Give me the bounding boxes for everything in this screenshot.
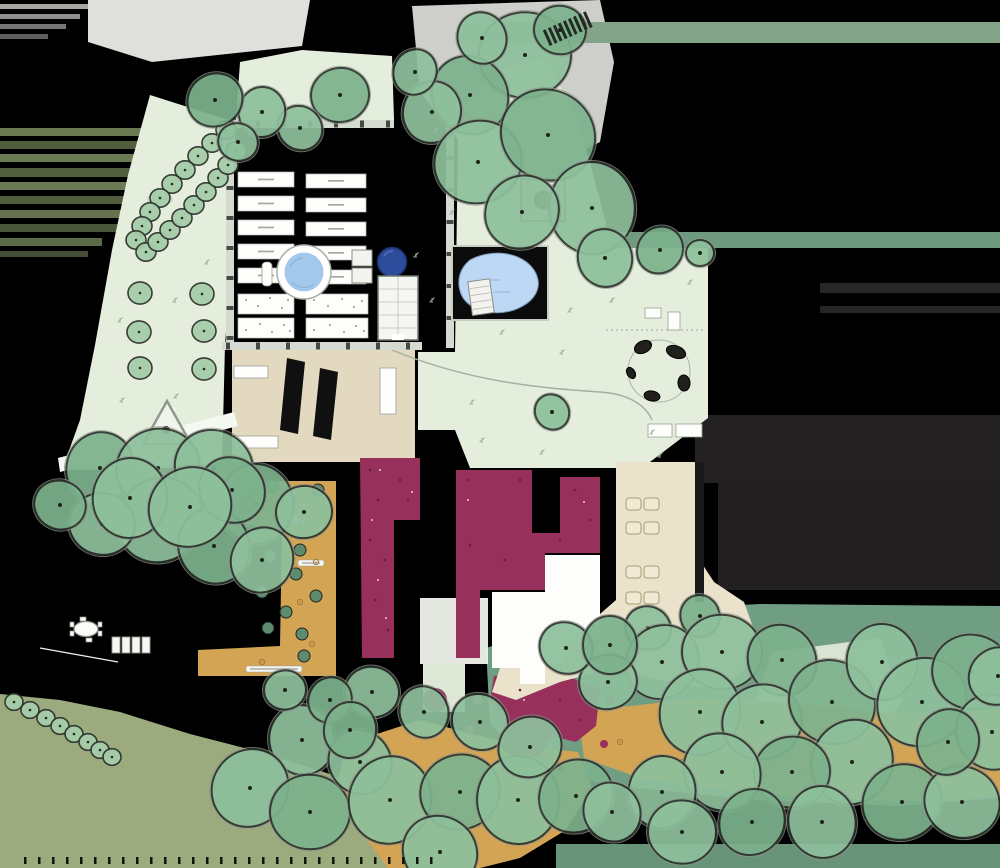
bed-label-mark [258,203,274,205]
tree-center [478,720,482,724]
paving-speckle [377,499,380,502]
edge-tick [24,857,27,864]
raised-bed-planted [238,294,294,314]
terrace-step [380,368,396,414]
tree-center [610,810,614,814]
paving-fleck [523,699,525,701]
edge-tick [80,857,83,864]
hedge-shrub-center [141,225,144,228]
hedge-shrub-center [145,251,148,254]
tree-center [720,770,724,774]
tree-center [328,698,332,702]
bed-speckle [259,323,261,325]
shadow-band [820,283,1000,293]
tree-center [422,710,426,714]
edge-stripe [0,251,88,257]
tree-center [830,700,834,704]
greenhouse-door [392,334,404,340]
paper-stripe [0,14,80,19]
paving-fleck [371,519,373,521]
tree-center [468,93,472,97]
bed-speckle [257,305,259,307]
meadow-shrub-center [13,701,16,704]
garden-furniture [668,312,680,330]
shadow-patch [695,415,1000,483]
edge-tick [262,857,265,864]
bed-label-mark [328,252,344,254]
hedge-shrub-center [159,197,162,200]
tree-center [388,798,392,802]
hedge-shrub-center [135,239,138,242]
edge-tick [346,857,349,864]
lounger [644,566,659,578]
meadow-shrub-center [87,741,90,744]
pool-bench [262,262,272,286]
tree-center [660,790,664,794]
bed-speckle [361,300,363,302]
paving-fleck [583,501,585,503]
paving-fleck [377,579,379,581]
tree-center [260,558,264,562]
picnic-table [74,622,98,637]
paper-stripe [0,24,66,29]
edge-tick [66,857,69,864]
gravel-shrub [280,606,292,618]
bed-label-mark [328,228,344,230]
tree-center [590,206,594,210]
tree-center [606,680,610,684]
pond-jetty [468,279,495,316]
tree-center [698,251,702,255]
paving-speckle [387,629,390,632]
picnic-chair [98,631,102,636]
edge-tick [416,857,419,864]
edge-tick [360,857,363,864]
bed-speckle [313,329,315,331]
edge-tick [150,857,153,864]
edge-tick [276,857,279,864]
tree-center [358,760,362,764]
paving-speckle [589,519,592,522]
picnic-chair [98,622,102,627]
picnic-chair [86,638,92,642]
tree-center [698,710,702,714]
tree-center [188,505,192,509]
tree-center [760,720,764,724]
edge-tick [304,857,307,864]
tree-center [298,126,302,130]
paving-fleck [467,499,469,501]
paper-stripe [0,34,48,39]
paving-fleck [385,617,387,619]
paving-speckle [559,699,562,702]
compost-bin [142,637,150,653]
gravel-squiggle [261,661,263,663]
edge-tick [38,857,41,864]
picnic-chair [80,617,86,621]
hedge-shrub-center [227,164,230,167]
paving-fleck [379,469,381,471]
lounger [626,566,641,578]
lounger [644,592,659,604]
hedge-shrub-center [181,217,184,220]
tree-center [236,140,240,144]
tree-center [780,658,784,662]
edge-tick [318,857,321,864]
terrace-bench [234,366,268,378]
meadow-shrub-center [73,733,76,736]
tree-center [212,544,216,548]
lawn-shrub-center [138,331,141,334]
tree-center [946,740,950,744]
edge-tick [94,857,97,864]
bed-speckle [271,331,273,333]
tree-center [608,643,612,647]
lounger [626,592,641,604]
garden-shed [352,268,372,283]
tree-center [564,646,568,650]
raised-bed-planted [306,318,368,338]
tree-center [658,248,662,252]
raised-bed-planted [238,318,294,338]
paving-speckle [504,559,507,562]
tree-center [920,700,924,704]
bed-label-mark [258,179,274,181]
lawn-shrub-center [139,292,142,295]
lawn-shrub-center [203,368,206,371]
gravel-shrub [262,622,274,634]
gravel-squiggle [311,643,313,645]
edge-tick [234,857,237,864]
tree-center [438,850,442,854]
hedge-shrub-center [171,183,174,186]
tree-center [300,738,304,742]
paving-speckle [384,559,387,562]
hedge-shrub-center [149,211,152,214]
tree-center [476,160,480,164]
gravel-shrub [294,544,306,556]
edge-stripe [0,224,120,232]
edge-tick [108,857,111,864]
compost-bin [122,637,130,653]
lounger [626,498,641,510]
garden-shed [352,250,372,266]
bed-speckle [341,298,343,300]
paving-fleck [411,491,413,493]
meadow-shrub-center [59,725,62,728]
tree-center [128,496,132,500]
tree-center [370,690,374,694]
edge-tick [248,857,251,864]
edge-tick [52,857,55,864]
hedge-shrub-center [193,204,196,207]
tree-center [523,53,527,57]
paving-speckle [519,689,522,692]
paving-speckle [579,719,582,722]
meadow-shrub-center [29,709,32,712]
lounger [626,522,641,534]
tree-center [58,503,62,507]
edge-tick [206,857,209,864]
tree-center [248,786,252,790]
hedge-shrub-center [169,229,172,232]
hedge-shrub-center [217,177,220,180]
hedge-shrub-center [157,241,160,244]
tree-center [574,794,578,798]
bed-speckle [355,325,357,327]
hedge-shrub-center [211,142,214,145]
paving-speckle [399,479,402,482]
bed-speckle [353,306,355,308]
paving-speckle [469,544,472,547]
green-band-bottom [556,844,1000,868]
edge-tick [388,857,391,864]
bed-speckle [245,329,247,331]
gravel-squiggle [299,601,301,603]
shadow-band [820,306,1000,313]
garden-wall-piece [676,424,702,437]
gravel-shrub [296,628,308,640]
garden-furniture [645,308,661,318]
site-plan [0,0,1000,868]
picnic-chair [70,622,74,627]
edge-tick [136,857,139,864]
lawn-shrub-center [201,293,204,296]
tree-center [720,650,724,654]
maroon-splash [600,740,608,748]
gravel-squiggle [619,741,621,743]
edge-stripe [0,238,102,246]
tree-center [546,133,550,137]
bed-speckle [245,299,247,301]
tree-center [550,410,554,414]
bed-label-mark [258,251,274,253]
bed-label-mark [258,227,274,229]
tree-center [302,510,306,514]
edge-tick [220,857,223,864]
paving-speckle [519,479,522,482]
edge-tick [178,857,181,864]
paving-speckle [407,499,410,502]
lounger [644,522,659,534]
tree-center [850,760,854,764]
garden-wall [222,342,422,350]
tree-center [480,36,484,40]
hedge-shrub-center [184,169,187,172]
tree-center [413,70,417,74]
gravel-shrub [298,650,310,662]
gravel-shrub [310,590,322,602]
compost-bin [112,637,120,653]
paving-speckle [559,539,562,542]
bed-speckle [289,330,291,332]
paving-speckle [374,599,377,602]
edge-tick [164,857,167,864]
compost-bin [132,637,140,653]
tree-center [680,830,684,834]
bed-speckle [363,330,365,332]
edge-tick [332,857,335,864]
tree-center [880,660,884,664]
tree-center [213,98,217,102]
tree-center [750,820,754,824]
tree-center [430,110,434,114]
bed-speckle [287,299,289,301]
tree-center [528,745,532,749]
tree-center [338,93,342,97]
tree-center [900,800,904,804]
meadow-shrub-center [45,717,48,720]
bed-speckle [313,299,315,301]
meadow-shrub-center [111,756,114,759]
tree-center [660,660,664,664]
meadow-shrub-center [99,749,102,752]
bed-speckle [283,324,285,326]
edge-tick [402,857,405,864]
lawn-shrub-center [203,330,206,333]
edge-tick [430,857,433,864]
edge-tick [290,857,293,864]
courtyard-wall [695,462,704,602]
edge-tick [192,857,195,864]
bed-speckle [269,297,271,299]
paving-speckle [369,469,372,472]
tree-center [603,256,607,260]
shadow-patch [718,482,1000,590]
tree-center [283,688,287,692]
tree-center [990,730,994,734]
edge-tick [374,857,377,864]
lounger [644,498,659,510]
paper-stripe [0,4,88,9]
tree-center [790,770,794,774]
paving-speckle [467,479,470,482]
tree-center [260,110,264,114]
paving-speckle [369,539,372,542]
bed-speckle [327,305,329,307]
site-plan-svg [0,0,1000,868]
hedge-shrub-center [205,191,208,194]
tree-center [516,798,520,802]
tree-center [520,210,524,214]
lawn-shrub-center [139,367,142,370]
hedge-shrub-center [197,155,200,158]
pool-water [285,253,324,292]
tree-center [996,674,1000,678]
edge-tick [122,857,125,864]
tree-center [820,820,824,824]
bed-speckle [281,307,283,309]
gravel-squiggle [315,561,317,563]
plant-tag-text-mark [302,562,320,563]
tree-center [960,800,964,804]
picnic-chair [70,631,74,636]
bed-speckle [343,331,345,333]
tree-center [458,790,462,794]
bed-speckle [329,324,331,326]
tree-center [308,810,312,814]
bed-label-mark [328,204,344,206]
tree-center [348,728,352,732]
bed-label-mark [328,180,344,182]
paving-speckle [574,489,577,492]
